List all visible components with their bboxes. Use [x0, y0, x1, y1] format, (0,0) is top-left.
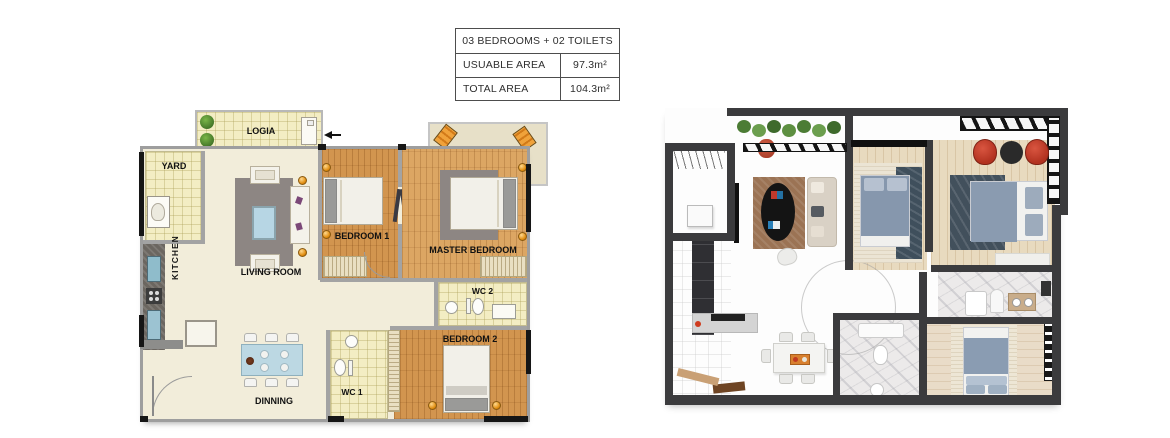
pillow-icon: [887, 178, 907, 191]
bed-icon: [323, 177, 383, 225]
wall-3d: [926, 317, 1055, 324]
lamp-icon: [322, 163, 331, 172]
pillow-icon: [1025, 214, 1043, 236]
room-label-master-bedroom: MASTER BEDROOM: [418, 245, 528, 255]
bathtub-icon: [492, 304, 516, 319]
magazine-icon: [771, 191, 783, 199]
window-segment: [484, 416, 528, 422]
sofa-icon: [807, 177, 837, 247]
floor-plan-2d: LOGIA YARD: [140, 108, 550, 424]
plant-icon: [200, 115, 214, 129]
wall-3d: [665, 233, 735, 241]
drying-rack-icon: [671, 149, 725, 169]
wall-3d: [727, 143, 735, 241]
window-band-3d: [851, 140, 927, 147]
washer-icon: [301, 117, 317, 145]
wall-3d: [925, 140, 933, 252]
chair-icon: [801, 374, 815, 384]
lamp-icon: [298, 248, 307, 257]
bathtub-icon: [858, 323, 904, 338]
red-armchair-icon: [1025, 139, 1049, 165]
pillow-icon: [811, 182, 824, 193]
toilet-icon: [348, 360, 353, 376]
balcony-glazing-3d: [743, 143, 847, 152]
chair-icon: [779, 374, 793, 384]
entry-arrow-icon: [324, 131, 332, 139]
cooktop-icon: [711, 314, 745, 321]
room-label-logia: LOGIA: [221, 126, 301, 136]
window-segment: [140, 416, 148, 422]
pillow-icon: [966, 385, 985, 394]
wardrobe-icon: [388, 330, 400, 412]
chair-icon: [286, 333, 299, 342]
plant-icon: [737, 120, 751, 133]
red-armchair-icon: [973, 139, 997, 165]
plant-icon: [827, 121, 841, 134]
window-segment: [526, 164, 531, 232]
wardrobe-icon: [323, 256, 367, 277]
kitchen-counter-3d: [692, 313, 758, 333]
balcony-glazing-3d: [960, 116, 1060, 131]
window-segment: [139, 315, 144, 347]
stove-flame-icon: [695, 321, 701, 327]
pillow-icon: [1025, 187, 1043, 209]
wall-3d: [919, 272, 927, 402]
room-label-bedroom-2: BEDROOM 2: [430, 334, 510, 344]
table-row-total-area: TOTAL AREA 104.3m²: [456, 78, 619, 101]
table-header: 03 BEDROOMS + 02 TOILETS: [456, 29, 619, 54]
lamp-icon: [428, 401, 437, 410]
plant-icon: [797, 120, 811, 133]
shelf-icon: [1041, 281, 1051, 296]
wall-3d: [833, 313, 927, 320]
bed-icon: [963, 327, 1009, 397]
magazine-icon: [768, 221, 780, 229]
bowl-icon: [246, 357, 254, 365]
plant-icon: [782, 124, 796, 137]
plant-icon: [767, 120, 781, 133]
pillow-icon: [864, 178, 884, 191]
usable-area-label: USUABLE AREA: [456, 54, 560, 77]
pillow-icon: [811, 226, 824, 237]
wall-3d: [845, 108, 853, 270]
sink-icon: [1012, 298, 1021, 307]
toilet-icon: [472, 298, 484, 315]
pillow-icon: [295, 222, 303, 230]
toilet-icon: [334, 359, 346, 376]
lamp-icon: [492, 401, 501, 410]
room-label-wc-2: WC 2: [438, 286, 527, 296]
room-label-dining: DINNING: [244, 396, 304, 406]
fridge-icon: [147, 310, 161, 340]
sink-icon: [345, 335, 358, 348]
wall-3d: [665, 143, 673, 405]
floor-plan-page: 03 BEDROOMS + 02 TOILETS USUABLE AREA 97…: [0, 0, 1170, 438]
table-row-usable-area: USUABLE AREA 97.3m²: [456, 54, 619, 78]
chair-icon: [801, 332, 815, 342]
window-segment: [139, 152, 144, 236]
toilet-icon: [873, 345, 888, 365]
chair-icon: [286, 378, 299, 387]
plant-icon: [812, 124, 826, 137]
sofa-icon: [290, 186, 310, 244]
kitchen-counter-end: [140, 340, 183, 349]
usable-area-value: 97.3m²: [560, 54, 619, 77]
bed-icon: [450, 177, 518, 230]
plant-icon: [200, 133, 214, 147]
bed-icon: [860, 175, 910, 247]
room-label-bedroom-1: BEDROOM 1: [328, 231, 396, 241]
chair-icon: [761, 349, 771, 363]
room-label-yard: YARD: [150, 161, 198, 171]
entry-arrow-line: [332, 134, 341, 136]
sink-icon: [147, 256, 161, 282]
vanity-icon: [1008, 293, 1036, 311]
tray-icon: [790, 354, 810, 365]
washer-icon: [687, 205, 713, 227]
wall-3d: [665, 143, 735, 151]
wall-3d: [665, 395, 1061, 405]
pillow-icon: [295, 196, 303, 205]
room-label-kitchen: KITCHEN: [170, 232, 182, 284]
wall-junction: [398, 144, 406, 150]
window-segment: [328, 416, 344, 422]
bathtub-icon: [965, 291, 987, 316]
bed-icon: [970, 181, 1048, 241]
total-area-value: 104.3m²: [560, 78, 619, 101]
chair-icon: [779, 332, 793, 342]
wall-3d: [833, 313, 840, 401]
window-segment: [526, 330, 531, 374]
chair-icon: [244, 333, 257, 342]
sink-icon: [445, 301, 458, 314]
coffee-table-icon: [252, 206, 276, 240]
dining-table-icon: [773, 343, 825, 373]
room-label-living: LIVING ROOM: [225, 267, 317, 277]
pillow-icon: [811, 206, 824, 217]
chair-icon: [265, 333, 278, 342]
chair-icon: [244, 378, 257, 387]
wall-3d: [1060, 108, 1068, 215]
plant-icon: [752, 124, 766, 137]
chair-icon: [265, 378, 278, 387]
washer-icon: [147, 196, 170, 228]
round-table-icon: [1000, 141, 1023, 164]
wall-3d: [931, 265, 1055, 272]
toilet-icon: [466, 298, 471, 314]
room-logia: LOGIA: [195, 110, 323, 150]
kitchen-cabinet: [185, 320, 217, 347]
door-leaf-icon: [152, 376, 154, 416]
lamp-icon: [298, 176, 307, 185]
shower-icon: [990, 289, 1004, 313]
room-label-wc-1: WC 1: [331, 387, 373, 397]
wall-3d: [1052, 205, 1061, 405]
floor-plan-3d: [655, 95, 1070, 425]
wall-junction: [318, 144, 326, 150]
area-info-table: 03 BEDROOMS + 02 TOILETS USUABLE AREA 97…: [455, 28, 620, 101]
sink-icon: [1024, 298, 1033, 307]
armchair-icon: [250, 166, 280, 184]
total-area-label: TOTAL AREA: [456, 78, 560, 101]
wardrobe-icon: [480, 256, 527, 277]
pillow-icon: [988, 385, 1007, 394]
dining-table-icon: [241, 344, 303, 376]
ceiling-circle-guide: [801, 260, 896, 355]
bed-icon: [443, 345, 490, 413]
stove-icon: [146, 288, 162, 304]
balcony-glazing-3d: [1047, 116, 1061, 204]
wall: [201, 151, 205, 242]
lamp-icon: [518, 232, 527, 241]
wall-3d: [727, 108, 1068, 116]
